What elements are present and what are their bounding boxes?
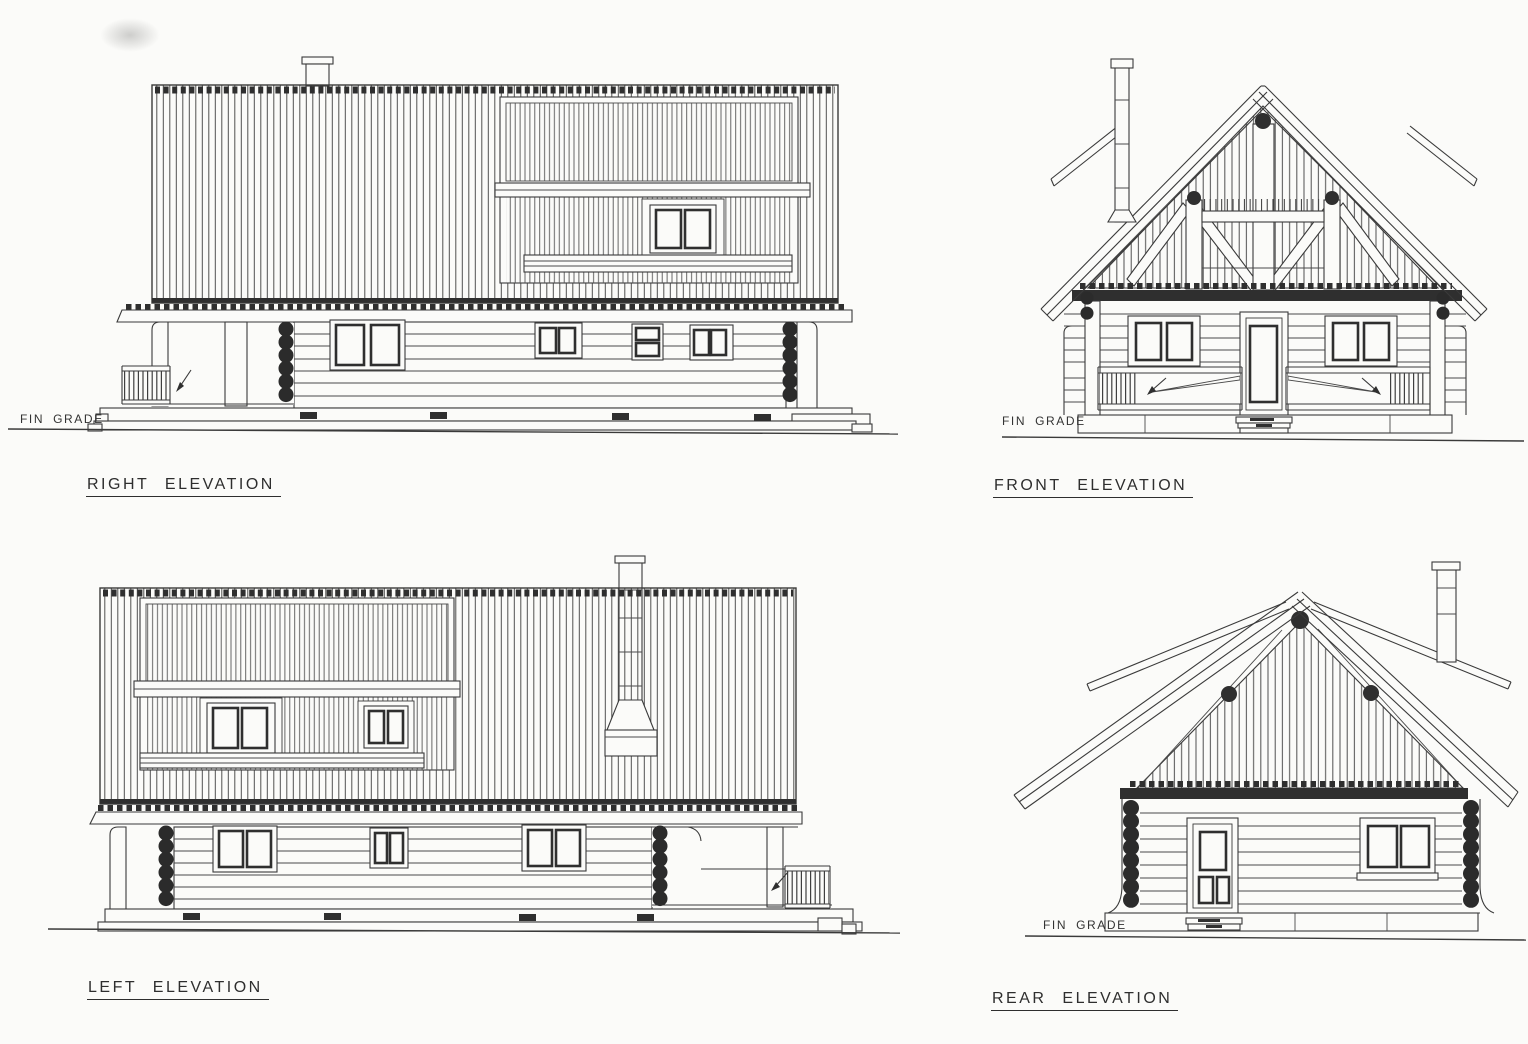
balcony-window [207, 703, 275, 753]
balcony-railing [524, 255, 792, 272]
front-elevation-drawing [1002, 59, 1524, 441]
log-wall [1108, 799, 1494, 914]
porch-post [225, 322, 247, 406]
left-elevation-title: LEFT ELEVATION [87, 979, 269, 1000]
chimney [302, 57, 333, 86]
corner-post [797, 322, 817, 408]
window [535, 323, 582, 358]
window [522, 825, 586, 871]
foundation-vent [754, 414, 771, 421]
porch-railing [122, 366, 170, 406]
window [213, 826, 277, 872]
balcony-window [364, 706, 408, 748]
rear-elevation-drawing [1014, 562, 1526, 940]
foundation-vent [637, 914, 654, 921]
fin-grade-label-right: FIN GRADE [20, 412, 104, 426]
purlin-log-end [1325, 191, 1339, 205]
elevation-sheet [0, 0, 1528, 1044]
entry-steps [1240, 428, 1288, 433]
collar-tie [1202, 211, 1324, 222]
porch-post [767, 827, 783, 907]
window [330, 320, 405, 370]
window [1325, 316, 1397, 366]
rear-elevation-title: REAR ELEVATION [991, 990, 1178, 1011]
purlin-log-end [1221, 686, 1237, 702]
window [632, 324, 663, 360]
log-wall [110, 825, 652, 909]
foundation [88, 408, 872, 432]
front-elevation-title: FRONT ELEVATION [993, 477, 1193, 498]
foundation-vent [183, 913, 200, 920]
truss-post [1186, 200, 1202, 289]
foundation-vent [612, 413, 629, 420]
porch [122, 322, 294, 406]
right-elevation-title: RIGHT ELEVATION [86, 476, 281, 497]
window [1357, 818, 1438, 880]
porch [652, 827, 832, 908]
porch-railing [785, 866, 830, 908]
window [1128, 316, 1200, 366]
foundation-vent [324, 913, 341, 920]
left-elevation-drawing [48, 556, 900, 934]
balcony-window [650, 205, 716, 253]
rear-door [1187, 818, 1238, 914]
foundation [1105, 913, 1478, 931]
roof-balcony-panel [495, 97, 810, 283]
grade-line [1002, 437, 1524, 441]
purlin-log-end [1363, 685, 1379, 701]
gable-siding [1137, 622, 1463, 788]
plate-beam [1120, 788, 1468, 799]
right-elevation-drawing [8, 57, 898, 434]
corner-post [110, 827, 126, 909]
grade-line [1025, 936, 1526, 940]
entry-door [1240, 312, 1288, 416]
chimney [1432, 562, 1460, 662]
truss-post [1324, 200, 1340, 289]
roof-balcony-panel [134, 598, 460, 770]
foundation-vent [519, 914, 536, 921]
window [690, 325, 733, 360]
purlin-log-end [1187, 191, 1201, 205]
log-wall [294, 320, 817, 408]
fin-grade-label-front: FIN GRADE [1002, 414, 1086, 428]
foundation-vent [430, 412, 447, 419]
window [370, 828, 408, 868]
plate-beam [1072, 290, 1462, 301]
balcony-railing [140, 753, 424, 768]
foundation [1078, 415, 1452, 433]
fin-grade-label-rear: FIN GRADE [1043, 918, 1127, 932]
foundation-vent [300, 412, 317, 419]
